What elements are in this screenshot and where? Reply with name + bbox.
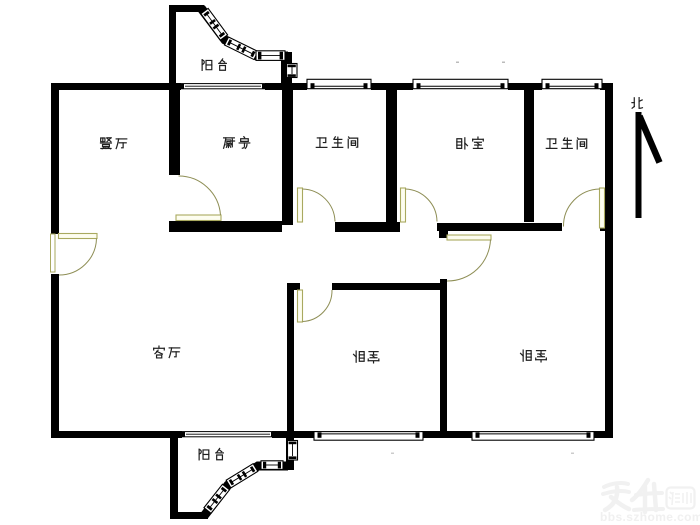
svg-text:bbs.szhome.com: bbs.szhome.com (600, 510, 700, 524)
